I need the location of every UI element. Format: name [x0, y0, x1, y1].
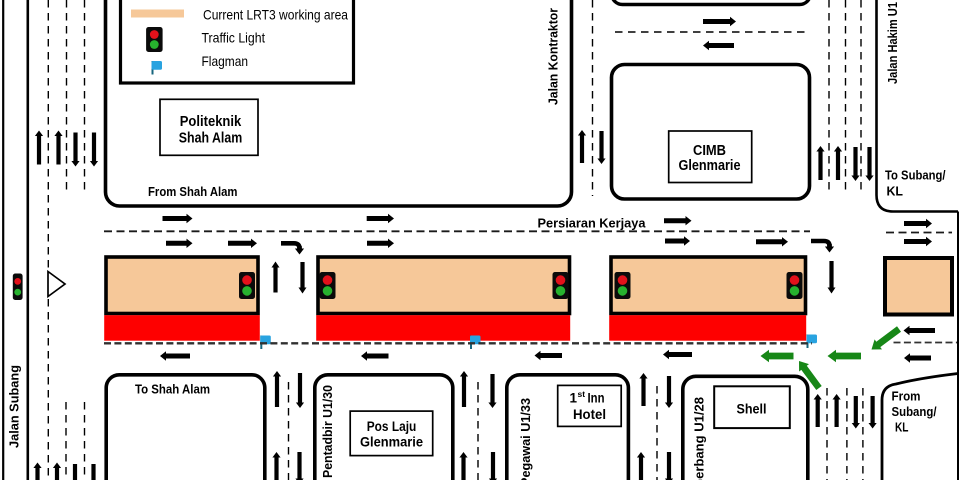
svg-text:Current LRT3 working area: Current LRT3 working area	[203, 7, 348, 23]
svg-text:From: From	[892, 389, 921, 403]
svg-text:1: 1	[570, 390, 578, 405]
svg-text:Hotel: Hotel	[573, 407, 606, 422]
svg-text:Shah Alam: Shah Alam	[179, 129, 243, 146]
svg-text:Politeknik: Politeknik	[180, 113, 242, 130]
svg-text:CIMB: CIMB	[693, 143, 726, 159]
svg-text:KL: KL	[887, 185, 904, 199]
svg-text:Inn: Inn	[588, 390, 605, 405]
svg-text:Persiaran Kerjaya: Persiaran Kerjaya	[538, 216, 647, 231]
svg-text:Pentadbir U1/30: Pentadbir U1/30	[321, 385, 335, 478]
svg-text:Pegawai U1/33: Pegawai U1/33	[519, 398, 533, 480]
svg-text:Glenmarie: Glenmarie	[360, 435, 423, 450]
svg-text:Traffic Light: Traffic Light	[202, 30, 266, 46]
svg-text:Gerbang U1/28: Gerbang U1/28	[693, 397, 707, 480]
svg-text:Flagman: Flagman	[202, 53, 249, 69]
svg-text:To Subang/: To Subang/	[885, 169, 946, 183]
svg-text:To Shah Alam: To Shah Alam	[135, 383, 210, 397]
svg-text:Subang/: Subang/	[892, 405, 937, 419]
svg-text:Shell: Shell	[737, 401, 767, 417]
svg-text:Jalan Subang: Jalan Subang	[8, 365, 22, 448]
svg-text:From Shah Alam: From Shah Alam	[148, 185, 238, 199]
svg-text:Jalan Hakim U1: Jalan Hakim U1	[886, 2, 900, 84]
svg-text:Jalan Kontraktor: Jalan Kontraktor	[547, 8, 561, 105]
svg-text:Glenmarie: Glenmarie	[679, 158, 741, 174]
svg-text:st: st	[578, 389, 586, 399]
svg-text:Pos Laju: Pos Laju	[367, 419, 417, 434]
svg-text:KL: KL	[895, 421, 909, 435]
